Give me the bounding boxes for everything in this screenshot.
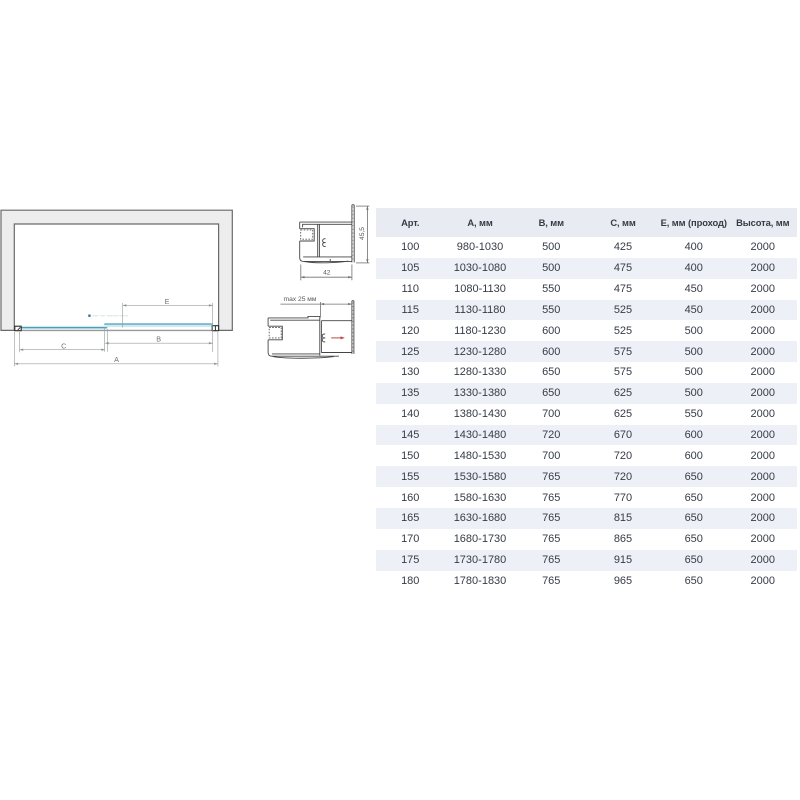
svg-text:A: A: [114, 355, 119, 364]
svg-text:B: B: [156, 335, 161, 344]
svg-text:C: C: [61, 341, 66, 350]
svg-text:45,5: 45,5: [359, 227, 366, 240]
svg-text:42: 42: [323, 270, 331, 277]
svg-text:max 25 мм: max 25 мм: [284, 296, 317, 303]
svg-text:E: E: [165, 297, 170, 306]
